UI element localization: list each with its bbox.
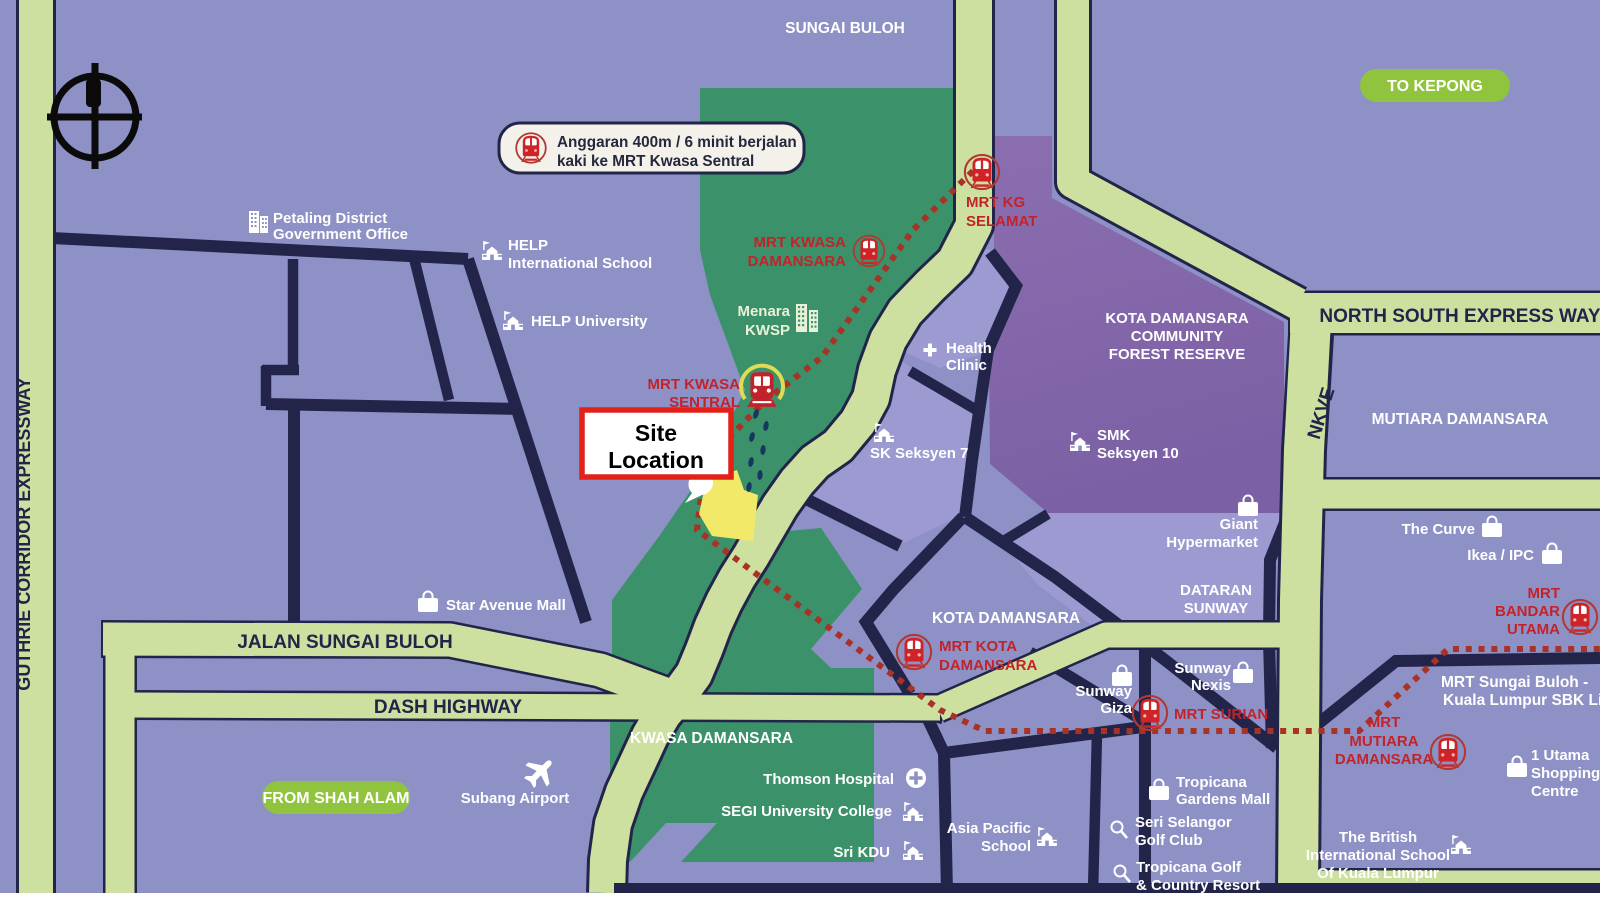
- svg-text:Sri KDU: Sri KDU: [833, 844, 890, 861]
- svg-text:Tropicana: Tropicana: [1176, 774, 1248, 791]
- svg-text:Ikea / IPC: Ikea / IPC: [1467, 547, 1534, 564]
- svg-text:TO KEPONG: TO KEPONG: [1387, 78, 1483, 95]
- svg-text:Sunway: Sunway: [1174, 660, 1231, 677]
- svg-text:MRT KWASA: MRT KWASA: [754, 234, 847, 251]
- svg-text:& Country Resort: & Country Resort: [1136, 877, 1260, 893]
- svg-text:FOREST RESERVE: FOREST RESERVE: [1109, 346, 1245, 363]
- svg-text:DATARAN: DATARAN: [1180, 582, 1252, 599]
- svg-text:Gardens Mall: Gardens Mall: [1176, 791, 1270, 808]
- svg-text:KWSP: KWSP: [745, 322, 790, 339]
- svg-text:Kuala Lumpur SBK Line: Kuala Lumpur SBK Line: [1443, 692, 1600, 709]
- svg-text:DASH HIGHWAY: DASH HIGHWAY: [374, 697, 522, 718]
- svg-text:SMK: SMK: [1097, 427, 1131, 444]
- svg-text:Seri Selangor: Seri Selangor: [1135, 814, 1232, 831]
- svg-text:JALAN SUNGAI BULOH: JALAN SUNGAI BULOH: [237, 632, 452, 653]
- svg-text:Subang Airport: Subang Airport: [461, 790, 570, 807]
- svg-text:Petaling District: Petaling District: [273, 210, 387, 227]
- svg-text:MRT Sungai Buloh -: MRT Sungai Buloh -: [1441, 674, 1588, 691]
- svg-text:Seksyen 10: Seksyen 10: [1097, 445, 1179, 462]
- svg-text:Site: Site: [635, 420, 677, 446]
- svg-text:SUNGAI BULOH: SUNGAI BULOH: [785, 20, 905, 37]
- svg-text:SUNWAY: SUNWAY: [1184, 600, 1248, 617]
- svg-text:NORTH SOUTH EXPRESS WAY: NORTH SOUTH EXPRESS WAY: [1319, 306, 1600, 327]
- svg-text:International School: International School: [1306, 847, 1450, 864]
- svg-text:KOTA DAMANSARA: KOTA DAMANSARA: [1105, 310, 1248, 327]
- svg-text:DAMANSARA: DAMANSARA: [1335, 751, 1433, 768]
- svg-text:KWASA DAMANSARA: KWASA DAMANSARA: [630, 730, 793, 747]
- svg-text:MRT: MRT: [1368, 714, 1401, 731]
- svg-text:Health: Health: [946, 340, 992, 357]
- svg-text:Nexis: Nexis: [1191, 677, 1231, 694]
- svg-text:HELP University: HELP University: [531, 313, 648, 330]
- svg-text:International School: International School: [508, 255, 652, 272]
- svg-text:Centre: Centre: [1531, 783, 1579, 800]
- svg-text:Thomson Hospital: Thomson Hospital: [763, 771, 894, 788]
- svg-text:Tropicana Golf: Tropicana Golf: [1136, 859, 1242, 876]
- svg-text:Golf Club: Golf Club: [1135, 832, 1203, 849]
- svg-text:Star Avenue Mall: Star Avenue Mall: [446, 597, 566, 614]
- svg-text:GUTHRIE CORRIDOR EXPRESSWAY: GUTHRIE CORRIDOR EXPRESSWAY: [14, 377, 34, 690]
- svg-text:The Curve: The Curve: [1402, 521, 1475, 538]
- svg-text:UTAMA: UTAMA: [1507, 621, 1560, 638]
- svg-text:SK Seksyen 7: SK Seksyen 7: [870, 445, 968, 462]
- svg-text:Giza: Giza: [1100, 700, 1132, 717]
- svg-text:MRT KG: MRT KG: [966, 194, 1025, 211]
- svg-text:kaki ke MRT Kwasa Sentral: kaki ke MRT Kwasa Sentral: [557, 153, 754, 170]
- svg-text:COMMUNITY: COMMUNITY: [1131, 328, 1224, 345]
- svg-text:The British: The British: [1339, 829, 1417, 846]
- svg-text:KOTA DAMANSARA: KOTA DAMANSARA: [932, 610, 1080, 627]
- svg-text:Giant: Giant: [1220, 516, 1258, 533]
- svg-text:MUTIARA DAMANSARA: MUTIARA DAMANSARA: [1372, 411, 1549, 428]
- svg-text:SELAMAT: SELAMAT: [966, 213, 1037, 230]
- svg-text:School: School: [981, 838, 1031, 855]
- svg-text:Of Kuala Lumpur: Of Kuala Lumpur: [1317, 865, 1439, 882]
- svg-text:Location: Location: [608, 447, 704, 473]
- svg-text:HELP: HELP: [508, 237, 548, 254]
- svg-text:MRT KOTA: MRT KOTA: [939, 638, 1017, 655]
- svg-text:MRT KWASA: MRT KWASA: [648, 376, 741, 393]
- svg-text:1 Utama: 1 Utama: [1531, 747, 1590, 764]
- svg-text:Menara: Menara: [737, 303, 790, 320]
- svg-text:Sunway: Sunway: [1075, 683, 1132, 700]
- svg-text:MRT SURIAN: MRT SURIAN: [1174, 706, 1268, 723]
- svg-text:DAMANSARA: DAMANSARA: [748, 253, 846, 270]
- svg-text:Hypermarket: Hypermarket: [1166, 534, 1258, 551]
- svg-text:Anggaran 400m / 6 minit berjal: Anggaran 400m / 6 minit berjalan: [557, 134, 797, 151]
- svg-text:DAMANSARA: DAMANSARA: [939, 657, 1037, 674]
- svg-text:MUTIARA: MUTIARA: [1349, 733, 1418, 750]
- svg-text:Clinic: Clinic: [946, 357, 987, 374]
- svg-text:Shopping: Shopping: [1531, 765, 1600, 782]
- svg-text:FROM SHAH ALAM: FROM SHAH ALAM: [263, 790, 410, 807]
- svg-text:SEGI University College: SEGI University College: [721, 803, 892, 820]
- svg-text:Government Office: Government Office: [273, 226, 408, 243]
- svg-text:BANDAR: BANDAR: [1495, 603, 1560, 620]
- svg-text:Asia Pacific: Asia Pacific: [947, 820, 1031, 837]
- svg-text:MRT: MRT: [1528, 585, 1561, 602]
